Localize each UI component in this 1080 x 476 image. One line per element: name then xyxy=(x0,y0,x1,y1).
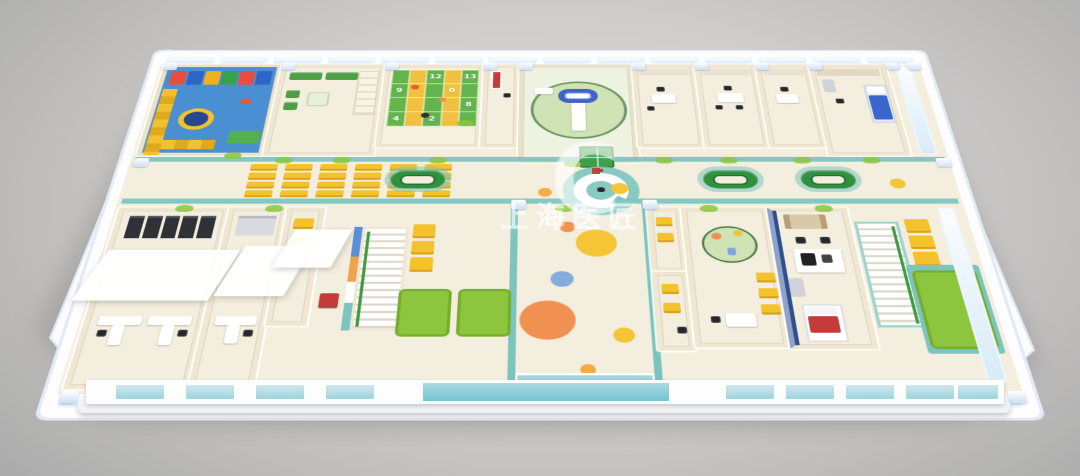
small-exam-room xyxy=(480,64,520,147)
play-mat xyxy=(226,131,261,144)
floor-dot xyxy=(538,188,552,197)
hopscotch-cell: 12 xyxy=(426,70,444,84)
waiting-chair xyxy=(386,190,414,197)
floor-dot xyxy=(559,222,575,233)
coffee-table xyxy=(306,92,331,106)
toy xyxy=(733,230,743,236)
activity-table xyxy=(579,146,615,167)
office-chair xyxy=(780,87,789,92)
waiting-chair xyxy=(352,181,380,188)
hopscotch-cell xyxy=(458,112,477,127)
back-counter xyxy=(701,69,750,75)
wood-cabinet xyxy=(783,215,828,229)
waiting-chair xyxy=(248,173,277,180)
green-sofa xyxy=(289,72,323,80)
waiting-chair xyxy=(422,190,450,197)
red-cart xyxy=(318,293,339,308)
facade-window xyxy=(326,385,374,399)
hopscotch-cell: 9 xyxy=(390,84,409,98)
window-pane xyxy=(543,57,592,64)
facade-window xyxy=(958,385,998,399)
green-sofa xyxy=(325,72,359,80)
facade-window xyxy=(906,385,954,399)
t-desk-stem xyxy=(157,325,175,345)
playground-room xyxy=(136,64,282,155)
lab-equipment xyxy=(234,216,277,236)
medical-equipment xyxy=(822,79,837,92)
exam-bed-red xyxy=(491,71,502,89)
office-chair xyxy=(242,330,253,337)
hopscotch-cell: 13 xyxy=(461,70,479,84)
small-table xyxy=(725,313,757,327)
yellow-chair xyxy=(756,273,776,283)
toy-ball xyxy=(711,233,722,240)
reception-sign xyxy=(596,169,603,172)
back-counter xyxy=(762,69,805,75)
hospital-bed xyxy=(863,85,897,123)
office-chair xyxy=(177,330,189,337)
yellow-chair xyxy=(760,304,781,314)
office-chair xyxy=(710,316,721,323)
yellow-mat xyxy=(903,219,931,233)
facade-window xyxy=(846,385,894,399)
yellow-mat-stack xyxy=(903,219,941,266)
t-desk xyxy=(147,316,193,325)
front-facade xyxy=(86,380,1004,404)
scanner-gantry xyxy=(558,89,598,103)
waiting-chair xyxy=(355,164,383,171)
window-pane xyxy=(650,57,699,64)
window-pane xyxy=(704,57,754,64)
facade-window xyxy=(256,385,304,399)
hopscotch-cell: 0 xyxy=(443,84,461,98)
hopscotch-mat: 121390842 xyxy=(386,70,479,126)
console-table xyxy=(535,88,553,94)
window-pane xyxy=(489,57,538,64)
hopscotch-cell: 4 xyxy=(386,112,406,127)
hopscotch-cell xyxy=(409,70,428,84)
green-armchair xyxy=(285,90,300,98)
t-desk xyxy=(97,316,143,325)
hopscotch-cell: 8 xyxy=(459,98,478,112)
waiting-chair xyxy=(315,190,344,197)
floor-dot xyxy=(576,230,618,257)
yellow-mat xyxy=(409,257,433,271)
waiting-chair xyxy=(285,164,313,171)
floor-plan: 121390842 xyxy=(52,56,1028,409)
window-pane xyxy=(435,57,484,64)
hopscotch-cell xyxy=(444,70,462,84)
office-chair xyxy=(735,105,743,109)
lounge-room xyxy=(263,64,386,155)
window-pane xyxy=(219,57,269,64)
t-desk-stem xyxy=(106,325,125,345)
exam-bed xyxy=(801,304,850,342)
yellow-mat xyxy=(908,235,936,249)
nap-mat xyxy=(456,289,512,337)
hopscotch-cell xyxy=(391,70,410,84)
window-pane xyxy=(757,57,807,64)
waiting-chair xyxy=(320,164,348,171)
yellow-mat xyxy=(412,224,436,238)
hopscotch-cell xyxy=(440,112,459,127)
toy-block xyxy=(727,248,736,256)
green-armchair xyxy=(283,102,298,110)
office-chair xyxy=(723,86,732,91)
waiting-chair xyxy=(317,181,346,188)
bench-island xyxy=(799,170,858,188)
play-toy xyxy=(240,99,252,104)
window-pane xyxy=(381,57,430,64)
bench-island xyxy=(389,170,445,188)
hopscotch-cell xyxy=(406,98,425,112)
office-chair xyxy=(835,99,844,104)
yellow-chair xyxy=(758,288,779,298)
corridor-band-back xyxy=(134,157,946,162)
consult-desk xyxy=(776,94,800,103)
office-chair xyxy=(715,105,723,109)
waiting-chair xyxy=(318,173,346,180)
waiting-chair xyxy=(351,190,380,197)
waiting-chair xyxy=(250,164,279,171)
yellow-chair xyxy=(661,284,679,294)
hopscotch-cell xyxy=(388,98,407,112)
yellow-chair xyxy=(293,218,315,228)
yellow-chair xyxy=(657,233,674,242)
window-pane xyxy=(596,57,645,64)
office-chair xyxy=(795,237,807,244)
server-racks xyxy=(123,216,216,238)
facade-window xyxy=(186,385,234,399)
receptionist xyxy=(597,187,605,192)
window-pane xyxy=(165,57,216,64)
office-chair xyxy=(647,106,655,110)
waiting-chair xyxy=(244,190,273,197)
hopscotch-cell xyxy=(425,84,444,98)
green-decal xyxy=(555,205,573,212)
hopscotch-room: 121390842 xyxy=(375,64,484,147)
facade-entrance-glass xyxy=(421,383,671,401)
floor-dot xyxy=(519,301,576,340)
waiting-chair xyxy=(246,181,275,188)
equipment-desk xyxy=(793,249,845,273)
facade-window xyxy=(726,385,774,399)
floor-dot xyxy=(889,179,907,189)
trampoline xyxy=(175,108,216,129)
waiting-chair xyxy=(353,173,381,180)
nap-mat xyxy=(394,289,452,337)
cabinet xyxy=(816,69,881,76)
consult-room-1 xyxy=(632,64,705,147)
t-desk xyxy=(214,316,257,325)
facade-window xyxy=(116,385,164,399)
floor-dot xyxy=(613,327,636,342)
waiting-chair xyxy=(279,190,308,197)
consult-desk xyxy=(651,94,676,103)
bench-island xyxy=(702,170,759,188)
floor-dot xyxy=(550,271,573,287)
office-chair xyxy=(96,330,108,337)
play-path-tiles xyxy=(160,140,216,149)
window-pane xyxy=(811,57,861,64)
yellow-mat xyxy=(411,241,435,255)
waiting-chair xyxy=(283,173,312,180)
hopscotch-cell xyxy=(460,84,478,98)
yellow-chair xyxy=(656,217,673,226)
play-structure xyxy=(168,71,273,85)
waiting-chair xyxy=(281,181,310,188)
facade-window xyxy=(786,385,834,399)
round-play-rug xyxy=(700,226,760,263)
yellow-mat-stack xyxy=(409,224,436,272)
window-pane xyxy=(273,57,323,64)
back-counter xyxy=(638,69,689,75)
corridor-band-front xyxy=(121,199,959,204)
office-chair xyxy=(677,327,687,334)
t-desk-stem xyxy=(223,325,240,343)
office-chair xyxy=(656,87,665,92)
microscope-unit xyxy=(788,278,806,297)
render-stage: 121390842 xyxy=(0,0,1080,476)
consult-desk xyxy=(717,93,744,102)
office-chair xyxy=(503,93,510,97)
window-pane xyxy=(865,57,916,64)
office-chair xyxy=(819,237,831,244)
window-pane xyxy=(327,57,377,64)
yellow-chair xyxy=(663,303,681,313)
